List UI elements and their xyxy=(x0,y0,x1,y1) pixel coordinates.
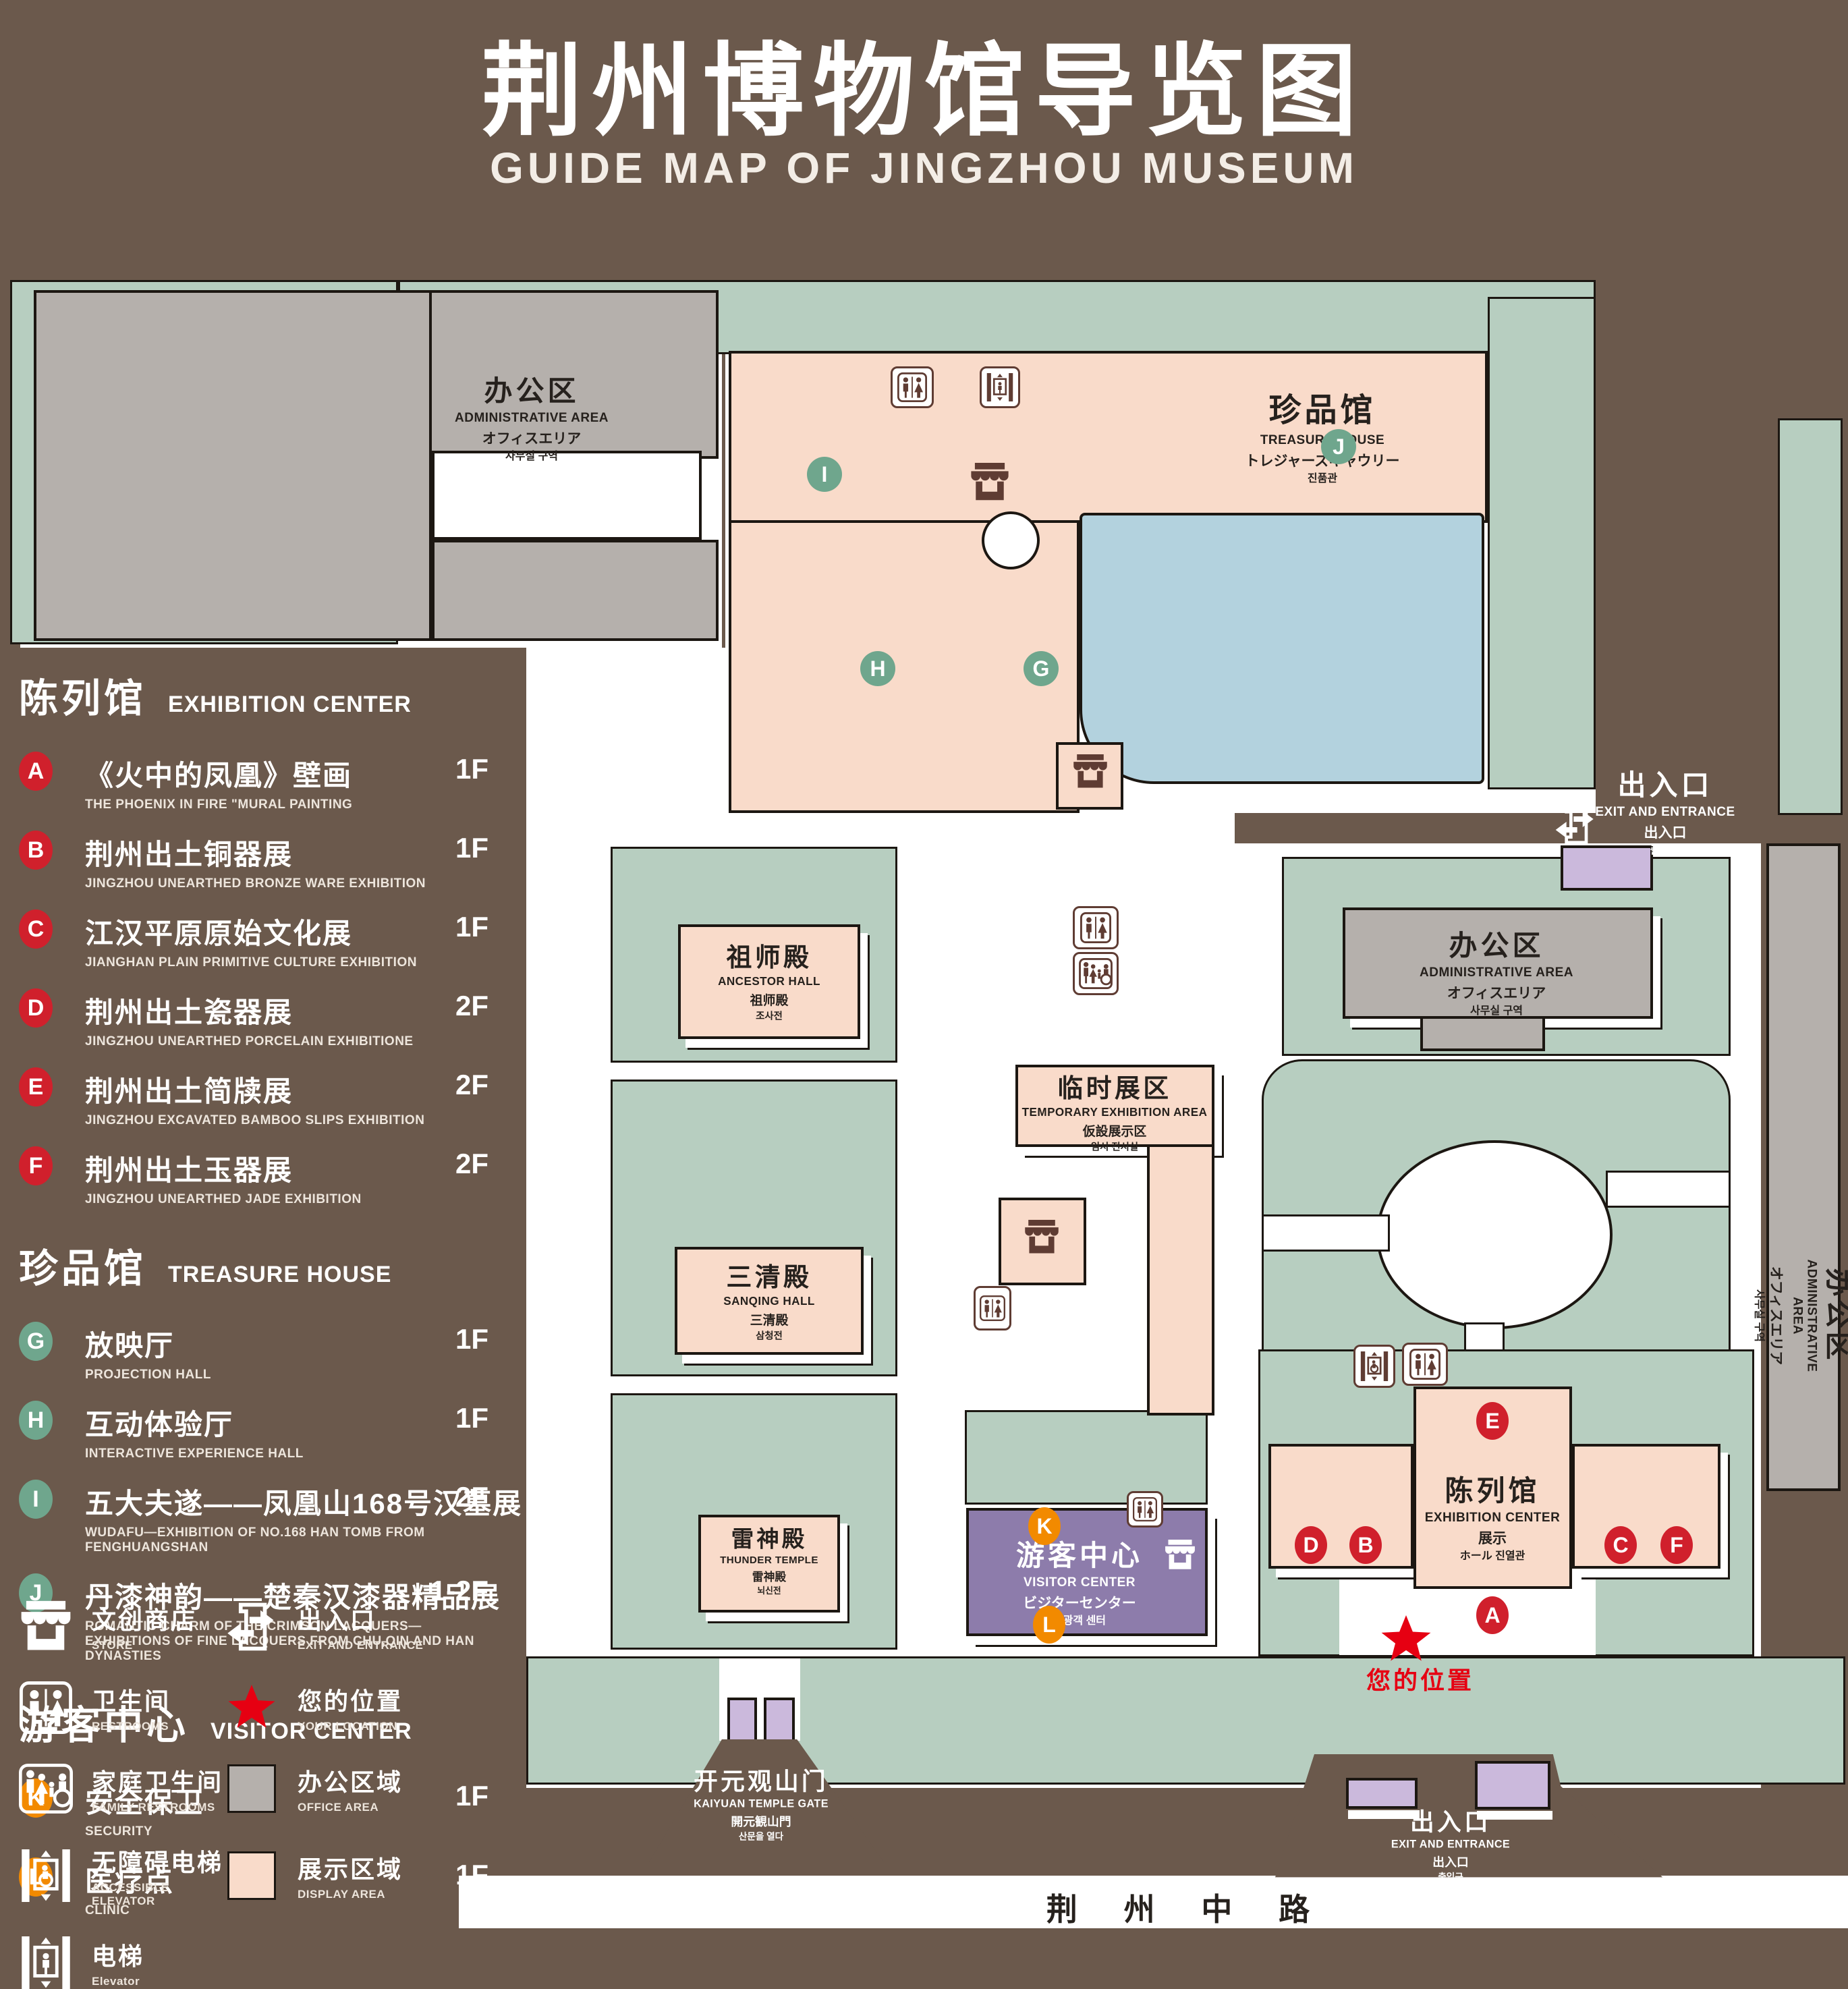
legend-item-floor: 1F xyxy=(455,1402,488,1434)
legend-symbol-en: OFFICE AREA xyxy=(298,1801,403,1814)
marker-badge-A: A xyxy=(19,752,53,791)
label-kr: ホール 진열관 xyxy=(1460,1550,1525,1563)
label-zh: 游客中心 xyxy=(1016,1540,1143,1571)
label-zh: 办公区 xyxy=(1822,1268,1848,1363)
label-en: TEMPORARY EXHIBITION AREA xyxy=(1022,1106,1208,1119)
label-zh: 三清殿 xyxy=(727,1263,812,1291)
legend-symbol-zh: 卫生间 xyxy=(92,1682,171,1717)
restroom-icon xyxy=(974,1286,1011,1330)
marker-E: E xyxy=(1476,1402,1509,1440)
legend-item-floor: 1F xyxy=(455,911,488,943)
building-admin-nw-left xyxy=(34,290,432,641)
legend-section-header: 陈列馆EXHIBITION CENTER xyxy=(19,667,524,723)
legend-symbol-en: RESTROOMS xyxy=(92,1720,171,1733)
legend-symbol-zh: 电梯 xyxy=(92,1937,144,1972)
label-jp: オフィスエリア xyxy=(482,431,582,447)
garden-path-east xyxy=(1606,1171,1731,1208)
label-kr: 산문을 열다 xyxy=(739,1832,783,1842)
label-jp: 開元観山門 xyxy=(731,1816,791,1829)
legend-symbol: 家庭卫生间FAMILY RESTROOMS xyxy=(19,1762,225,1815)
building-exhibition-left-wing xyxy=(1268,1444,1413,1569)
legend-item-H: H互动体验厅1FINTERACTIVE EXPERIENCE HALL xyxy=(19,1402,524,1461)
legend-section: 陈列馆EXHIBITION CENTERA《火中的凤凰》壁画1FTHE PHOE… xyxy=(19,667,524,1207)
label-zh: 办公区 xyxy=(484,375,579,407)
legend-symbol-en: YOUR LOCATION xyxy=(298,1720,403,1733)
building-admin-nw-bottom xyxy=(432,540,719,641)
label-jp: 三清殿 xyxy=(750,1314,789,1328)
marker-badge-I: I xyxy=(19,1480,53,1519)
building-admin-east xyxy=(1766,843,1841,1491)
legend-symbol: 展示区域DISPLAY AREA xyxy=(225,1843,524,1908)
legend-symbol-zh: 无障碍电梯 xyxy=(92,1843,225,1878)
legend-section-title-en: EXHIBITION CENTER xyxy=(168,692,412,718)
store-icon xyxy=(969,463,1011,502)
legend-item-zh: 互动体验厅 xyxy=(85,1409,233,1440)
store-icon xyxy=(19,1600,73,1653)
exit-bottom-building-west xyxy=(1346,1778,1418,1809)
legend-symbol-zh: 家庭卫生间 xyxy=(92,1763,223,1798)
legend-item-en: JINGZHOU UNEARTHED PORCELAIN EXHIBITIONE xyxy=(85,1034,497,1049)
legend-symbol-zh: 您的位置 xyxy=(298,1682,403,1717)
office-area-swatch xyxy=(225,1762,279,1815)
treasure-plaza-circle xyxy=(982,511,1040,569)
restroom-icon xyxy=(1127,1491,1163,1528)
legend-item-C: C江汉平原原始文化展1FJIANGHAN PLAIN PRIMITIVE CUL… xyxy=(19,911,524,970)
legend-item-floor: 1F xyxy=(455,832,488,864)
label-en: EXIT AND ENTRANCE xyxy=(1391,1839,1510,1851)
marker-K: K xyxy=(1028,1507,1061,1545)
legend-section-title-zh: 珍品馆 xyxy=(19,1237,146,1293)
exit-icon xyxy=(1554,803,1597,846)
restroom-icon xyxy=(1402,1343,1448,1386)
lawn-visitor-north xyxy=(965,1410,1208,1505)
legend-symbol-en: DISPLAY AREA xyxy=(298,1888,403,1901)
legend-symbol: 办公区域OFFICE AREA xyxy=(225,1762,524,1815)
store-icon xyxy=(1071,754,1109,789)
legend-item-en: JINGZHOU UNEARTHED BRONZE WARE EXHIBITIO… xyxy=(85,876,497,891)
legend-symbol-zh: 展示区域 xyxy=(298,1850,403,1885)
legend-symbol: 无障碍电梯ACCESSIBLE ELEVATOR xyxy=(19,1843,225,1908)
label-kr: 임시 전시실 xyxy=(1091,1142,1138,1153)
guide-map-canvas: { "title": {"zh": "荆州博物馆导览图", "en": "GUI… xyxy=(0,0,1848,1976)
lawn-east-strip xyxy=(1778,418,1843,815)
accessible-elevator-icon xyxy=(19,1849,73,1902)
legend-item-zh: 荆州出土简牍展 xyxy=(85,1075,293,1107)
label-kr: 출입구 xyxy=(1650,845,1680,857)
legend-symbol-en: STORE xyxy=(92,1639,197,1652)
legend-item-en: THE PHOENIX IN FIRE "MURAL PAINTING xyxy=(85,797,497,812)
legend-symbol-en: FAMILY RESTROOMS xyxy=(92,1801,223,1814)
exit-icon xyxy=(225,1600,279,1653)
restroom-icon xyxy=(891,366,934,408)
family-restroom-icon xyxy=(19,1762,73,1815)
marker-I: I xyxy=(807,457,842,492)
marker-badge-C: C xyxy=(19,909,53,949)
label-zh: 出入口 xyxy=(1617,769,1712,801)
label-jp: 出入口 xyxy=(1644,825,1687,841)
legend-symbol: 文创商店STORE xyxy=(19,1600,225,1653)
elevator-icon xyxy=(19,1936,73,1989)
label-en: KAIYUAN TEMPLE GATE xyxy=(694,1798,829,1810)
legend-symbol-zh: 出入口 xyxy=(298,1601,423,1636)
legend-item-E: E荆州出土简牍展2FJINGZHOU EXCAVATED BAMBOO SLIP… xyxy=(19,1069,524,1128)
label-admin-mid: 办公区ADMINISTRATIVE AREAオフィスエリア사무실 구역 xyxy=(1420,930,1573,1017)
legend-symbol-zh: 办公区域 xyxy=(298,1763,403,1798)
store-icon xyxy=(1023,1220,1061,1255)
legend-symbol: 您的位置YOUR LOCATION xyxy=(225,1681,524,1734)
location-star-icon xyxy=(225,1681,279,1734)
road-name-label: 荆 州 中 路 xyxy=(1046,1885,1328,1930)
legend-item-en: PROJECTION HALL xyxy=(85,1368,497,1382)
label-ancestor-hall: 祖师殿ANCESTOR HALL祖师殿조사전 xyxy=(718,943,820,1022)
legend-item-D: D荆州出土瓷器展2FJINGZHOU UNEARTHED PORCELAIN E… xyxy=(19,990,524,1049)
legend-item-floor: 2F xyxy=(455,1069,488,1101)
legend-symbol: 出入口EXIT AND ENTRANCE xyxy=(225,1600,524,1653)
label-admin-east: 办公区ADMINISTRATIVE AREAオフィスエリア사무실 구역 xyxy=(1753,1259,1848,1372)
display-area-swatch xyxy=(225,1849,279,1902)
garden-plaza xyxy=(1376,1140,1613,1329)
marker-G: G xyxy=(1024,651,1059,686)
legend-section-title-en: TREASURE HOUSE xyxy=(168,1262,391,1288)
legend-symbols: 文创商店STORE出入口EXIT AND ENTRANCE卫生间RESTROOM… xyxy=(19,1600,524,1989)
label-exit-right: 出入口EXIT AND ENTRANCE出入口출입구 xyxy=(1595,769,1735,857)
legend-item-zh: 《火中的凤凰》壁画 xyxy=(85,760,352,791)
legend-item-F: F荆州出土玉器展2FJINGZHOU UNEARTHED JADE EXHIBI… xyxy=(19,1148,524,1207)
legend-section-header: 珍品馆TREASURE HOUSE xyxy=(19,1237,524,1293)
label-sanqing-hall: 三清殿SANQING HALL三清殿삼청전 xyxy=(723,1263,815,1342)
label-temporary-exhibition: 临时展区TEMPORARY EXHIBITION AREA仮設展示区임시 전시실 xyxy=(1022,1074,1208,1153)
family-restroom-icon xyxy=(1073,952,1119,995)
legend-item-I: I五大夫遂——凤凰山168号汉墓展2FWUDAFU—EXHIBITION OF … xyxy=(19,1481,524,1555)
label-en: ADMINISTRATIVE AREA xyxy=(1420,965,1573,980)
label-zh: 临时展区 xyxy=(1057,1074,1171,1102)
label-en: ANCESTOR HALL xyxy=(718,976,820,988)
label-jp: 祖师殿 xyxy=(750,994,789,1008)
label-admin-nw: 办公区ADMINISTRATIVE AREAオフィスエリア사무실 구역 xyxy=(455,375,609,463)
marker-badge-G: G xyxy=(19,1322,53,1361)
legend-item-floor: 2F xyxy=(455,990,488,1022)
marker-badge-B: B xyxy=(19,831,53,870)
legend-item-B: B荆州出土铜器展1FJINGZHOU UNEARTHED BRONZE WARE… xyxy=(19,832,524,891)
building-admin-mid-tab xyxy=(1420,1016,1545,1051)
label-jp: トレジャーズギャウリー xyxy=(1245,453,1400,470)
your-location-label: 您的位置 xyxy=(1366,1661,1474,1696)
label-zh: 珍品馆 xyxy=(1268,393,1376,429)
label-zh: 陈列馆 xyxy=(1445,1475,1540,1507)
legend-item-floor: 1F xyxy=(455,1323,488,1355)
marker-F: F xyxy=(1660,1526,1693,1564)
marker-C: C xyxy=(1604,1526,1637,1564)
legend-item-floor: 1F xyxy=(455,753,488,785)
legend-item-en: INTERACTIVE EXPERIENCE HALL xyxy=(85,1447,497,1461)
label-jp: 出入口 xyxy=(1432,1856,1469,1870)
legend-item-zh: 荆州出土铜器展 xyxy=(85,839,293,870)
label-zh: 出入口 xyxy=(1410,1808,1491,1835)
label-jp: 展示 xyxy=(1478,1531,1507,1547)
admin-nw-courtyard xyxy=(432,451,702,540)
page-title: 荆州博物馆导览图 xyxy=(481,9,1366,156)
label-en: ADMINISTRATIVE AREA xyxy=(455,411,609,425)
label-exhibition-center: 陈列馆EXHIBITION CENTER展示ホール 진열관 xyxy=(1425,1475,1561,1563)
legend-symbol-zh: 文创商店 xyxy=(92,1601,197,1636)
building-temporary-exhibition-wing xyxy=(1147,1144,1214,1416)
legend-symbol-en: Elevator xyxy=(92,1975,144,1988)
legend-item-zh: 荆州出土玉器展 xyxy=(85,1154,293,1186)
label-en: SANQING HALL xyxy=(723,1295,815,1308)
accessible-elevator-icon xyxy=(1353,1345,1395,1388)
label-jp: 雷神殿 xyxy=(752,1571,786,1584)
marker-badge-H: H xyxy=(19,1401,53,1440)
legend-symbol-en: EXIT AND ENTRANCE xyxy=(298,1639,423,1652)
store-icon xyxy=(1163,1540,1197,1571)
garden-path-west xyxy=(1262,1214,1390,1252)
legend-symbol: 电梯Elevator xyxy=(19,1936,225,1989)
marker-J: J xyxy=(1321,429,1356,464)
marker-badge-E: E xyxy=(19,1067,53,1106)
marker-L: L xyxy=(1033,1606,1065,1644)
legend-item-floor: 2F xyxy=(455,1481,488,1513)
legend-section-title-zh: 陈列馆 xyxy=(19,667,146,723)
label-kr: 삼청전 xyxy=(756,1331,783,1342)
legend-item-zh: 荆州出土瓷器展 xyxy=(85,997,293,1028)
restroom-icon xyxy=(19,1681,73,1734)
lawn-ne-column xyxy=(1488,297,1596,789)
label-kr: 진품관 xyxy=(1308,473,1337,485)
marker-D: D xyxy=(1295,1526,1327,1564)
label-zh: 雷神殿 xyxy=(731,1526,808,1552)
marker-badge-D: D xyxy=(19,988,53,1028)
marker-A: A xyxy=(1476,1596,1509,1634)
legend-symbol-en: ACCESSIBLE ELEVATOR xyxy=(92,1881,225,1908)
label-kr: 사무실 구역 xyxy=(1470,1005,1523,1017)
label-zh: 祖师殿 xyxy=(727,943,812,972)
page-subtitle: GUIDE MAP OF JINGZHOU MUSEUM xyxy=(490,143,1358,193)
building-exhibition-right-wing xyxy=(1572,1444,1720,1569)
label-en: EXHIBITION CENTER xyxy=(1425,1511,1561,1525)
elevator-icon xyxy=(980,366,1020,408)
legend-item-A: A《火中的凤凰》壁画1FTHE PHOENIX IN FIRE "MURAL P… xyxy=(19,753,524,812)
label-en: EXIT AND ENTRANCE xyxy=(1595,805,1735,819)
legend-item-floor: 2F xyxy=(455,1148,488,1180)
label-en: ADMINISTRATIVE AREA xyxy=(1790,1259,1819,1372)
label-en: VISITOR CENTER xyxy=(1024,1575,1136,1590)
legend-item-en: JIANGHAN PLAIN PRIMITIVE CULTURE EXHIBIT… xyxy=(85,955,497,970)
legend-item-G: G放映厅1FPROJECTION HALL xyxy=(19,1323,524,1382)
legend-item-en: JINGZHOU EXCAVATED BAMBOO SLIPS EXHIBITI… xyxy=(85,1113,497,1128)
label-kaiyuan-gate: 开元观山门KAIYUAN TEMPLE GATE開元観山門산문을 열다 xyxy=(694,1768,829,1842)
label-zh: 办公区 xyxy=(1449,930,1544,961)
label-kr: 뇌신전 xyxy=(757,1586,781,1596)
label-jp: 仮設展示区 xyxy=(1083,1125,1146,1139)
pond xyxy=(1080,513,1484,784)
marker-badge-F: F xyxy=(19,1146,53,1185)
label-kr: 출입구 xyxy=(1438,1872,1463,1882)
label-exit-bottom: 出入口EXIT AND ENTRANCE出入口출입구 xyxy=(1391,1808,1510,1882)
label-en: THUNDER TEMPLE xyxy=(720,1554,818,1566)
label-jp: オフィスエリア xyxy=(1447,986,1546,1002)
label-thunder-temple: 雷神殿THUNDER TEMPLE雷神殿뇌신전 xyxy=(720,1526,818,1596)
legend-item-en: JINGZHOU UNEARTHED JADE EXHIBITION xyxy=(85,1192,497,1207)
label-kr: 조사전 xyxy=(756,1011,783,1022)
label-jp: オフィスエリア xyxy=(1768,1266,1784,1366)
legend-item-zh: 放映厅 xyxy=(85,1330,174,1362)
marker-B: B xyxy=(1349,1526,1382,1564)
legend-item-zh: 江汉平原原始文化展 xyxy=(85,918,352,949)
legend-symbol: 卫生间RESTROOMS xyxy=(19,1681,225,1734)
restroom-icon xyxy=(1073,906,1119,949)
legend-item-en: WUDAFU—EXHIBITION OF NO.168 HAN TOMB FRO… xyxy=(85,1525,497,1555)
marker-H: H xyxy=(860,651,895,686)
exit-bottom-building-east xyxy=(1475,1761,1550,1810)
label-kr: 사무실 구역 xyxy=(1753,1289,1765,1342)
label-kr: 사무실 구역 xyxy=(505,451,558,463)
label-zh: 开元观山门 xyxy=(694,1768,829,1795)
